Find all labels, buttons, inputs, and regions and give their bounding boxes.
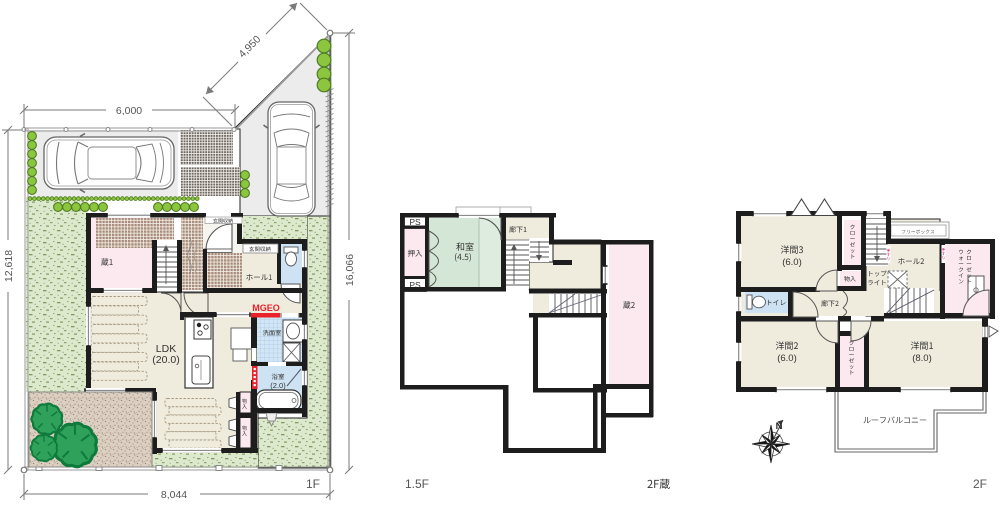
svg-text:(8.0): (8.0)	[912, 353, 932, 364]
svg-text:1F: 1F	[306, 477, 320, 491]
svg-text:1.5F: 1.5F	[405, 477, 429, 491]
svg-text:(20.0): (20.0)	[152, 354, 179, 366]
svg-text:12,618: 12,618	[3, 250, 15, 282]
svg-text:16,066: 16,066	[344, 254, 356, 286]
svg-text:8,044: 8,044	[161, 489, 187, 501]
svg-text:2F: 2F	[973, 477, 987, 491]
svg-text:6,000: 6,000	[116, 105, 142, 117]
svg-text:(6.0): (6.0)	[782, 257, 802, 268]
svg-text:(6.0): (6.0)	[777, 353, 797, 364]
svg-text:(2.0): (2.0)	[270, 381, 286, 390]
svg-text:MGEO: MGEO	[252, 303, 280, 313]
